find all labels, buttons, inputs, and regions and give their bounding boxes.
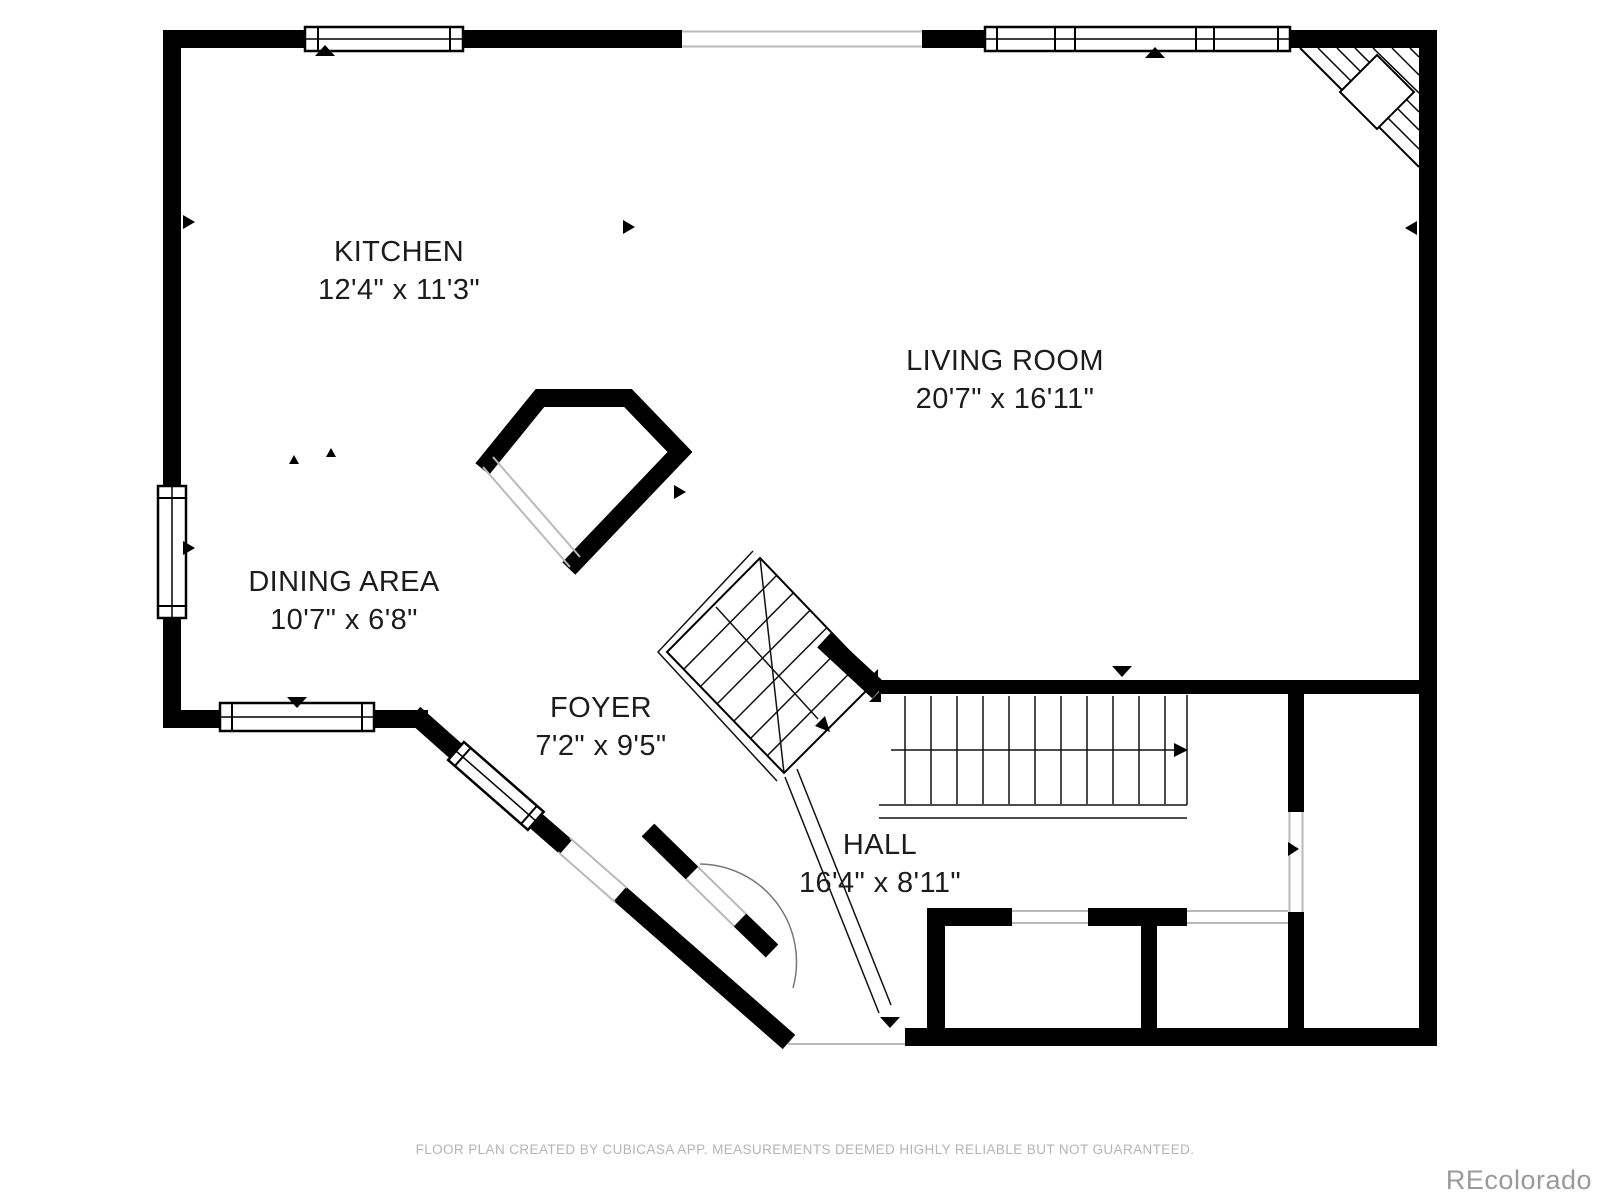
floor-plan-drawing [0, 0, 1600, 1200]
room-dims: 7'2" x 9'5" [535, 727, 666, 765]
floor-plan-page: KITCHEN 12'4" x 11'3" LIVING ROOM 20'7" … [0, 0, 1600, 1200]
corner-fireplace [1300, 48, 1419, 167]
room-name: KITCHEN [318, 233, 480, 271]
window-top-living [985, 27, 1290, 51]
marker-stair-wall [1112, 666, 1132, 677]
room-label-hall: HALL 16'4" x 8'11" [799, 826, 961, 902]
room-name: FOYER [535, 689, 666, 727]
room-label-living-room: LIVING ROOM 20'7" x 16'11" [906, 342, 1104, 418]
room-dims: 16'4" x 8'11" [799, 864, 961, 902]
marker-dining-a [289, 455, 299, 464]
room-label-dining-area: DINING AREA 10'7" x 6'8" [248, 563, 439, 639]
marker-kitchen-mid [623, 220, 635, 234]
marker-left-window-dining [183, 541, 195, 555]
pantry-closet [483, 398, 680, 567]
room-dims: 12'4" x 11'3" [318, 271, 480, 309]
room-name: HALL [799, 826, 961, 864]
marker-right-wall-living [1405, 221, 1417, 235]
room-dims: 20'7" x 16'11" [906, 380, 1104, 418]
marker-left-wall-kitchen [183, 215, 195, 229]
marker-hall-door [1288, 842, 1299, 856]
room-name: DINING AREA [248, 563, 439, 601]
room-dims: 10'7" x 6'8" [248, 601, 439, 639]
window-diagonal-foyer [448, 742, 544, 830]
marker-pantry-right [674, 485, 686, 499]
room-name: LIVING ROOM [906, 342, 1104, 380]
window-top-kitchen [305, 27, 463, 51]
room-label-kitchen: KITCHEN 12'4" x 11'3" [318, 233, 480, 309]
marker-dining-b [326, 448, 336, 457]
window-left-dining [158, 486, 186, 618]
footer-disclaimer: FLOOR PLAN CREATED BY CUBICASA APP. MEAS… [416, 1142, 1195, 1157]
marker-entry-gap [880, 1017, 900, 1028]
watermark-recolorado: REcolorado [1446, 1165, 1592, 1196]
room-label-foyer: FOYER 7'2" x 9'5" [535, 689, 666, 765]
